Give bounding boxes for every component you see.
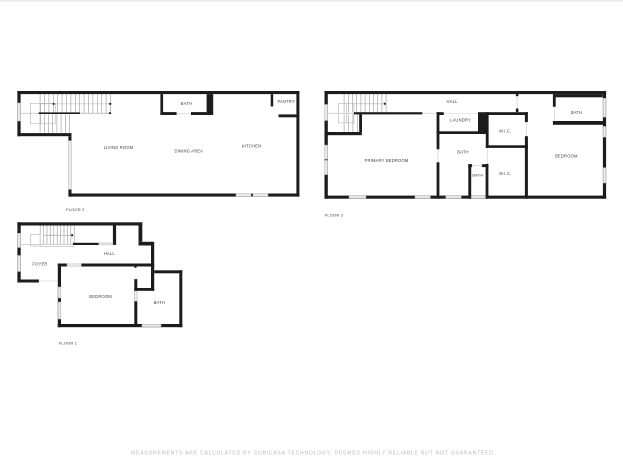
svg-text:W.I.C.: W.I.C.	[499, 129, 511, 134]
svg-text:FLOOR 3: FLOOR 3	[325, 212, 344, 217]
svg-text:BATH: BATH	[181, 101, 192, 106]
svg-text:FLOOR 2: FLOOR 2	[66, 207, 85, 212]
svg-text:LIVING ROOM: LIVING ROOM	[104, 145, 134, 150]
svg-text:DINING AREA: DINING AREA	[174, 148, 203, 153]
svg-text:LAUNDRY: LAUNDRY	[450, 117, 471, 122]
svg-text:PRIMARY BEDROOM: PRIMARY BEDROOM	[365, 158, 409, 163]
svg-text:KITCHEN: KITCHEN	[242, 144, 261, 149]
svg-text:BATH: BATH	[571, 110, 582, 115]
svg-text:FLOOR 1: FLOOR 1	[59, 341, 78, 346]
svg-text:BATH: BATH	[154, 300, 165, 305]
svg-text:HALL: HALL	[104, 251, 116, 256]
svg-text:BEDROOM: BEDROOM	[89, 294, 112, 299]
svg-text:W.I.C.: W.I.C.	[499, 171, 511, 176]
svg-text:MEASUREMENTS ARE CALCULATED BY: MEASUREMENTS ARE CALCULATED BY CUBICASA …	[131, 450, 496, 456]
svg-text:BATH: BATH	[457, 149, 468, 154]
svg-text:FOYER: FOYER	[32, 262, 47, 267]
svg-text:BEDROOM: BEDROOM	[555, 154, 578, 159]
svg-text:HALL: HALL	[446, 99, 458, 104]
svg-text:PANTRY: PANTRY	[277, 99, 294, 104]
svg-text:BATH: BATH	[472, 172, 483, 177]
